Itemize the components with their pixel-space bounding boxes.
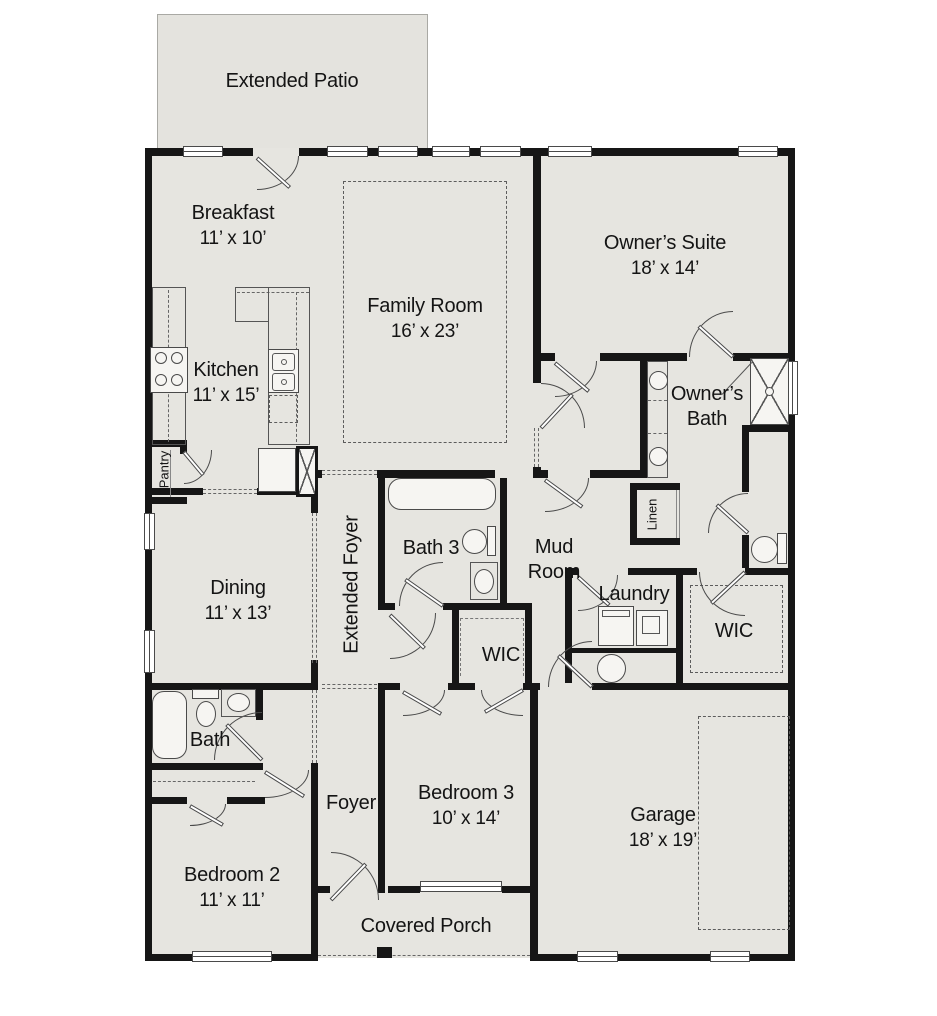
wall-segment xyxy=(311,660,318,683)
wall-segment xyxy=(676,568,697,575)
room-name: Extended Patio xyxy=(226,70,359,92)
room-dims: 18’ x 14’ xyxy=(565,256,765,281)
room-label-extended-foyer: Extended Foyer xyxy=(341,475,364,695)
room-label-extended-patio: Extended Patio xyxy=(192,69,392,94)
bathtub xyxy=(388,478,496,510)
room-name: Garage xyxy=(630,804,696,826)
window xyxy=(378,146,418,157)
room-name: Breakfast xyxy=(192,202,275,224)
closet-line xyxy=(676,490,677,538)
door-opening xyxy=(253,148,299,156)
window xyxy=(577,951,618,962)
wall-segment xyxy=(533,353,555,361)
window xyxy=(192,951,272,962)
closet-shelf-dashed xyxy=(153,781,255,782)
window xyxy=(548,146,592,157)
wall-segment xyxy=(540,470,548,478)
room-name: Owner’s Bath xyxy=(671,383,743,430)
room-name: Kitchen xyxy=(193,359,258,381)
sink-bowl xyxy=(474,569,494,594)
vanity-dashed xyxy=(648,433,667,434)
wall-segment xyxy=(533,156,541,383)
room-label-dining: Dining 11’ x 13’ xyxy=(138,576,338,626)
room-label-kitchen: Kitchen 11’ x 15’ xyxy=(126,358,326,408)
porch-edge-dashed xyxy=(318,955,530,956)
room-name: Bath 3 xyxy=(403,537,460,559)
room-name: Bath xyxy=(190,729,230,751)
kitchen-counter xyxy=(235,287,269,322)
room-name: Owner’s Suite xyxy=(604,232,726,254)
toilet-bowl xyxy=(751,536,778,563)
wall-segment xyxy=(145,497,187,504)
wall-segment xyxy=(742,535,749,568)
room-label-bath3: Bath 3 xyxy=(331,536,531,561)
floor-plan: Extended Patio Breakfast 11’ x 10’ Famil… xyxy=(0,0,937,1016)
window xyxy=(144,513,155,550)
room-label-owners-wic: WIC xyxy=(634,619,834,644)
wall-segment xyxy=(145,148,795,156)
water-heater xyxy=(597,654,626,683)
room-label-bath2: Bath xyxy=(110,728,310,753)
toilet-tank xyxy=(777,533,787,564)
wall-segment xyxy=(502,886,538,893)
room-name: Family Room xyxy=(367,295,483,317)
wall-segment xyxy=(145,148,152,961)
room-name: Bedroom 3 xyxy=(418,782,514,804)
room-name: WIC xyxy=(482,644,520,666)
room-dims: 10’ x 14’ xyxy=(366,806,566,831)
wall-segment xyxy=(590,470,640,478)
wall-segment xyxy=(378,603,395,610)
wall-segment xyxy=(145,488,203,495)
toilet-tank xyxy=(192,689,219,699)
room-dims: 11’ x 11’ xyxy=(132,888,332,913)
room-label-pantry: Pantry xyxy=(157,445,172,495)
window xyxy=(738,146,778,157)
wall-segment xyxy=(742,432,749,492)
room-label-mud-room: Mud Room xyxy=(507,535,601,585)
window xyxy=(710,951,750,962)
room-label-laundry: Laundry xyxy=(534,582,734,607)
room-name: Laundry xyxy=(599,583,670,605)
cased-opening xyxy=(203,489,257,494)
window xyxy=(183,146,223,157)
cased-opening xyxy=(312,690,317,763)
room-name: Linen xyxy=(645,499,660,531)
wall-segment xyxy=(630,483,637,545)
room-dims: 16’ x 23’ xyxy=(325,319,525,344)
wall-segment xyxy=(388,886,420,893)
room-dims: 11’ x 13’ xyxy=(138,601,338,626)
shower-drain xyxy=(765,387,774,396)
room-dims: 11’ x 10’ xyxy=(133,226,333,251)
room-dims: 18’ x 19’ xyxy=(563,828,763,853)
refrigerator xyxy=(258,448,296,492)
wall-segment xyxy=(377,470,495,478)
room-label-bed3-wic: WIC xyxy=(401,643,601,668)
room-label-family-room: Family Room 16’ x 23’ xyxy=(325,294,525,344)
room-label-bedroom2: Bedroom 2 11’ x 11’ xyxy=(132,863,332,913)
room-label-covered-porch: Covered Porch xyxy=(326,914,526,939)
porch-column xyxy=(377,947,392,958)
room-label-garage: Garage 18’ x 19’ xyxy=(563,803,763,853)
room-name: Covered Porch xyxy=(361,915,492,937)
room-label-owners-bath: Owner’s Bath xyxy=(652,382,762,432)
room-label-owners-suite: Owner’s Suite 18’ x 14’ xyxy=(565,231,765,281)
chase-x-box xyxy=(296,446,318,497)
room-name: Pantry xyxy=(157,451,172,489)
wall-segment xyxy=(745,568,795,575)
window xyxy=(432,146,470,157)
window xyxy=(327,146,368,157)
room-label-breakfast: Breakfast 11’ x 10’ xyxy=(133,201,333,251)
cased-opening xyxy=(534,428,539,467)
window xyxy=(420,881,502,892)
room-label-linen: Linen xyxy=(645,485,660,545)
wall-segment xyxy=(592,683,795,690)
wall-segment xyxy=(448,683,475,690)
washer-panel xyxy=(602,610,630,617)
window xyxy=(480,146,521,157)
wall-segment xyxy=(633,353,687,361)
room-dims: 11’ x 15’ xyxy=(126,383,326,408)
closet-line xyxy=(679,490,680,538)
wall-segment xyxy=(530,954,795,961)
room-name: Mud Room xyxy=(528,536,581,583)
wall-segment xyxy=(443,603,532,610)
wall-segment xyxy=(145,797,187,804)
toilet-bowl xyxy=(196,701,216,727)
wall-segment xyxy=(628,568,676,575)
vanity-sink xyxy=(649,447,668,466)
wall-segment xyxy=(145,763,263,770)
room-name: Bedroom 2 xyxy=(184,864,280,886)
room-label-bedroom3: Bedroom 3 10’ x 14’ xyxy=(366,781,566,831)
sink-bowl xyxy=(227,693,250,712)
window xyxy=(144,630,155,673)
room-name: WIC xyxy=(715,620,753,642)
room-name: Dining xyxy=(210,577,266,599)
